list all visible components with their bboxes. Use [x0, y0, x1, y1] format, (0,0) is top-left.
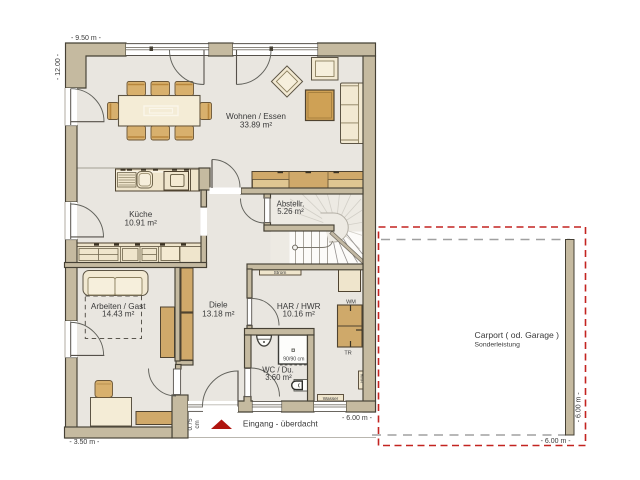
svg-text:0.75: 0.75 [187, 418, 194, 431]
svg-text:- 9.50 m -: - 9.50 m - [71, 35, 102, 42]
svg-text:13.18 m²: 13.18 m² [202, 309, 235, 318]
svg-text:- 6.00 m -: - 6.00 m - [576, 392, 583, 423]
svg-text:10.16 m²: 10.16 m² [283, 310, 316, 319]
svg-text:- 12.00 -: - 12.00 - [55, 53, 62, 80]
svg-text:TR: TR [344, 351, 351, 357]
svg-text:- 6.00 m -: - 6.00 m - [541, 438, 572, 445]
svg-text:Strom: Strom [274, 270, 287, 276]
svg-text:3.60 m²: 3.60 m² [265, 373, 292, 382]
svg-text:14.43 m²: 14.43 m² [102, 309, 135, 318]
svg-text:Wasser: Wasser [323, 396, 339, 401]
svg-text:5.26 m²: 5.26 m² [277, 207, 304, 216]
svg-text:90/90 cm: 90/90 cm [283, 356, 304, 362]
svg-text:Eingang - überdacht: Eingang - überdacht [243, 419, 318, 429]
svg-text:Sonderleistung: Sonderleistung [475, 342, 521, 349]
svg-text:- 6.00 m -: - 6.00 m - [342, 415, 373, 422]
svg-text:cm: cm [194, 420, 201, 428]
svg-text:Carport ( od. Garage ): Carport ( od. Garage ) [475, 330, 560, 340]
svg-text:33.89 m²: 33.89 m² [240, 120, 273, 129]
svg-text:10.91 m²: 10.91 m² [125, 218, 158, 227]
svg-text:- 3.50 m -: - 3.50 m - [69, 439, 100, 446]
svg-text:WM: WM [346, 300, 356, 306]
